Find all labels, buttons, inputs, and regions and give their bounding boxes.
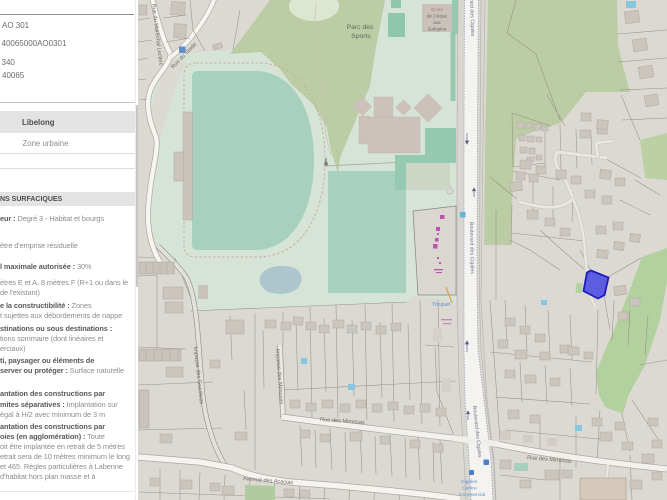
svg-text:École: École [431,6,443,12]
svg-text:Centre: Centre [462,486,477,492]
svg-text:Parc des: Parc des [347,24,374,31]
svg-text:Galopins: Galopins [428,27,447,32]
svg-text:aux: aux [433,20,441,25]
svg-text:Cigales: Cigales [461,479,478,485]
svg-text:de Cirque: de Cirque [427,14,448,19]
svg-text:Sports: Sports [351,33,371,40]
svg-text:Boulevard des Cigales: Boulevard des Cigales [468,222,475,274]
svg-text:Commercial: Commercial [459,492,485,498]
svg-text:Trinquet: Trinquet [432,302,451,308]
